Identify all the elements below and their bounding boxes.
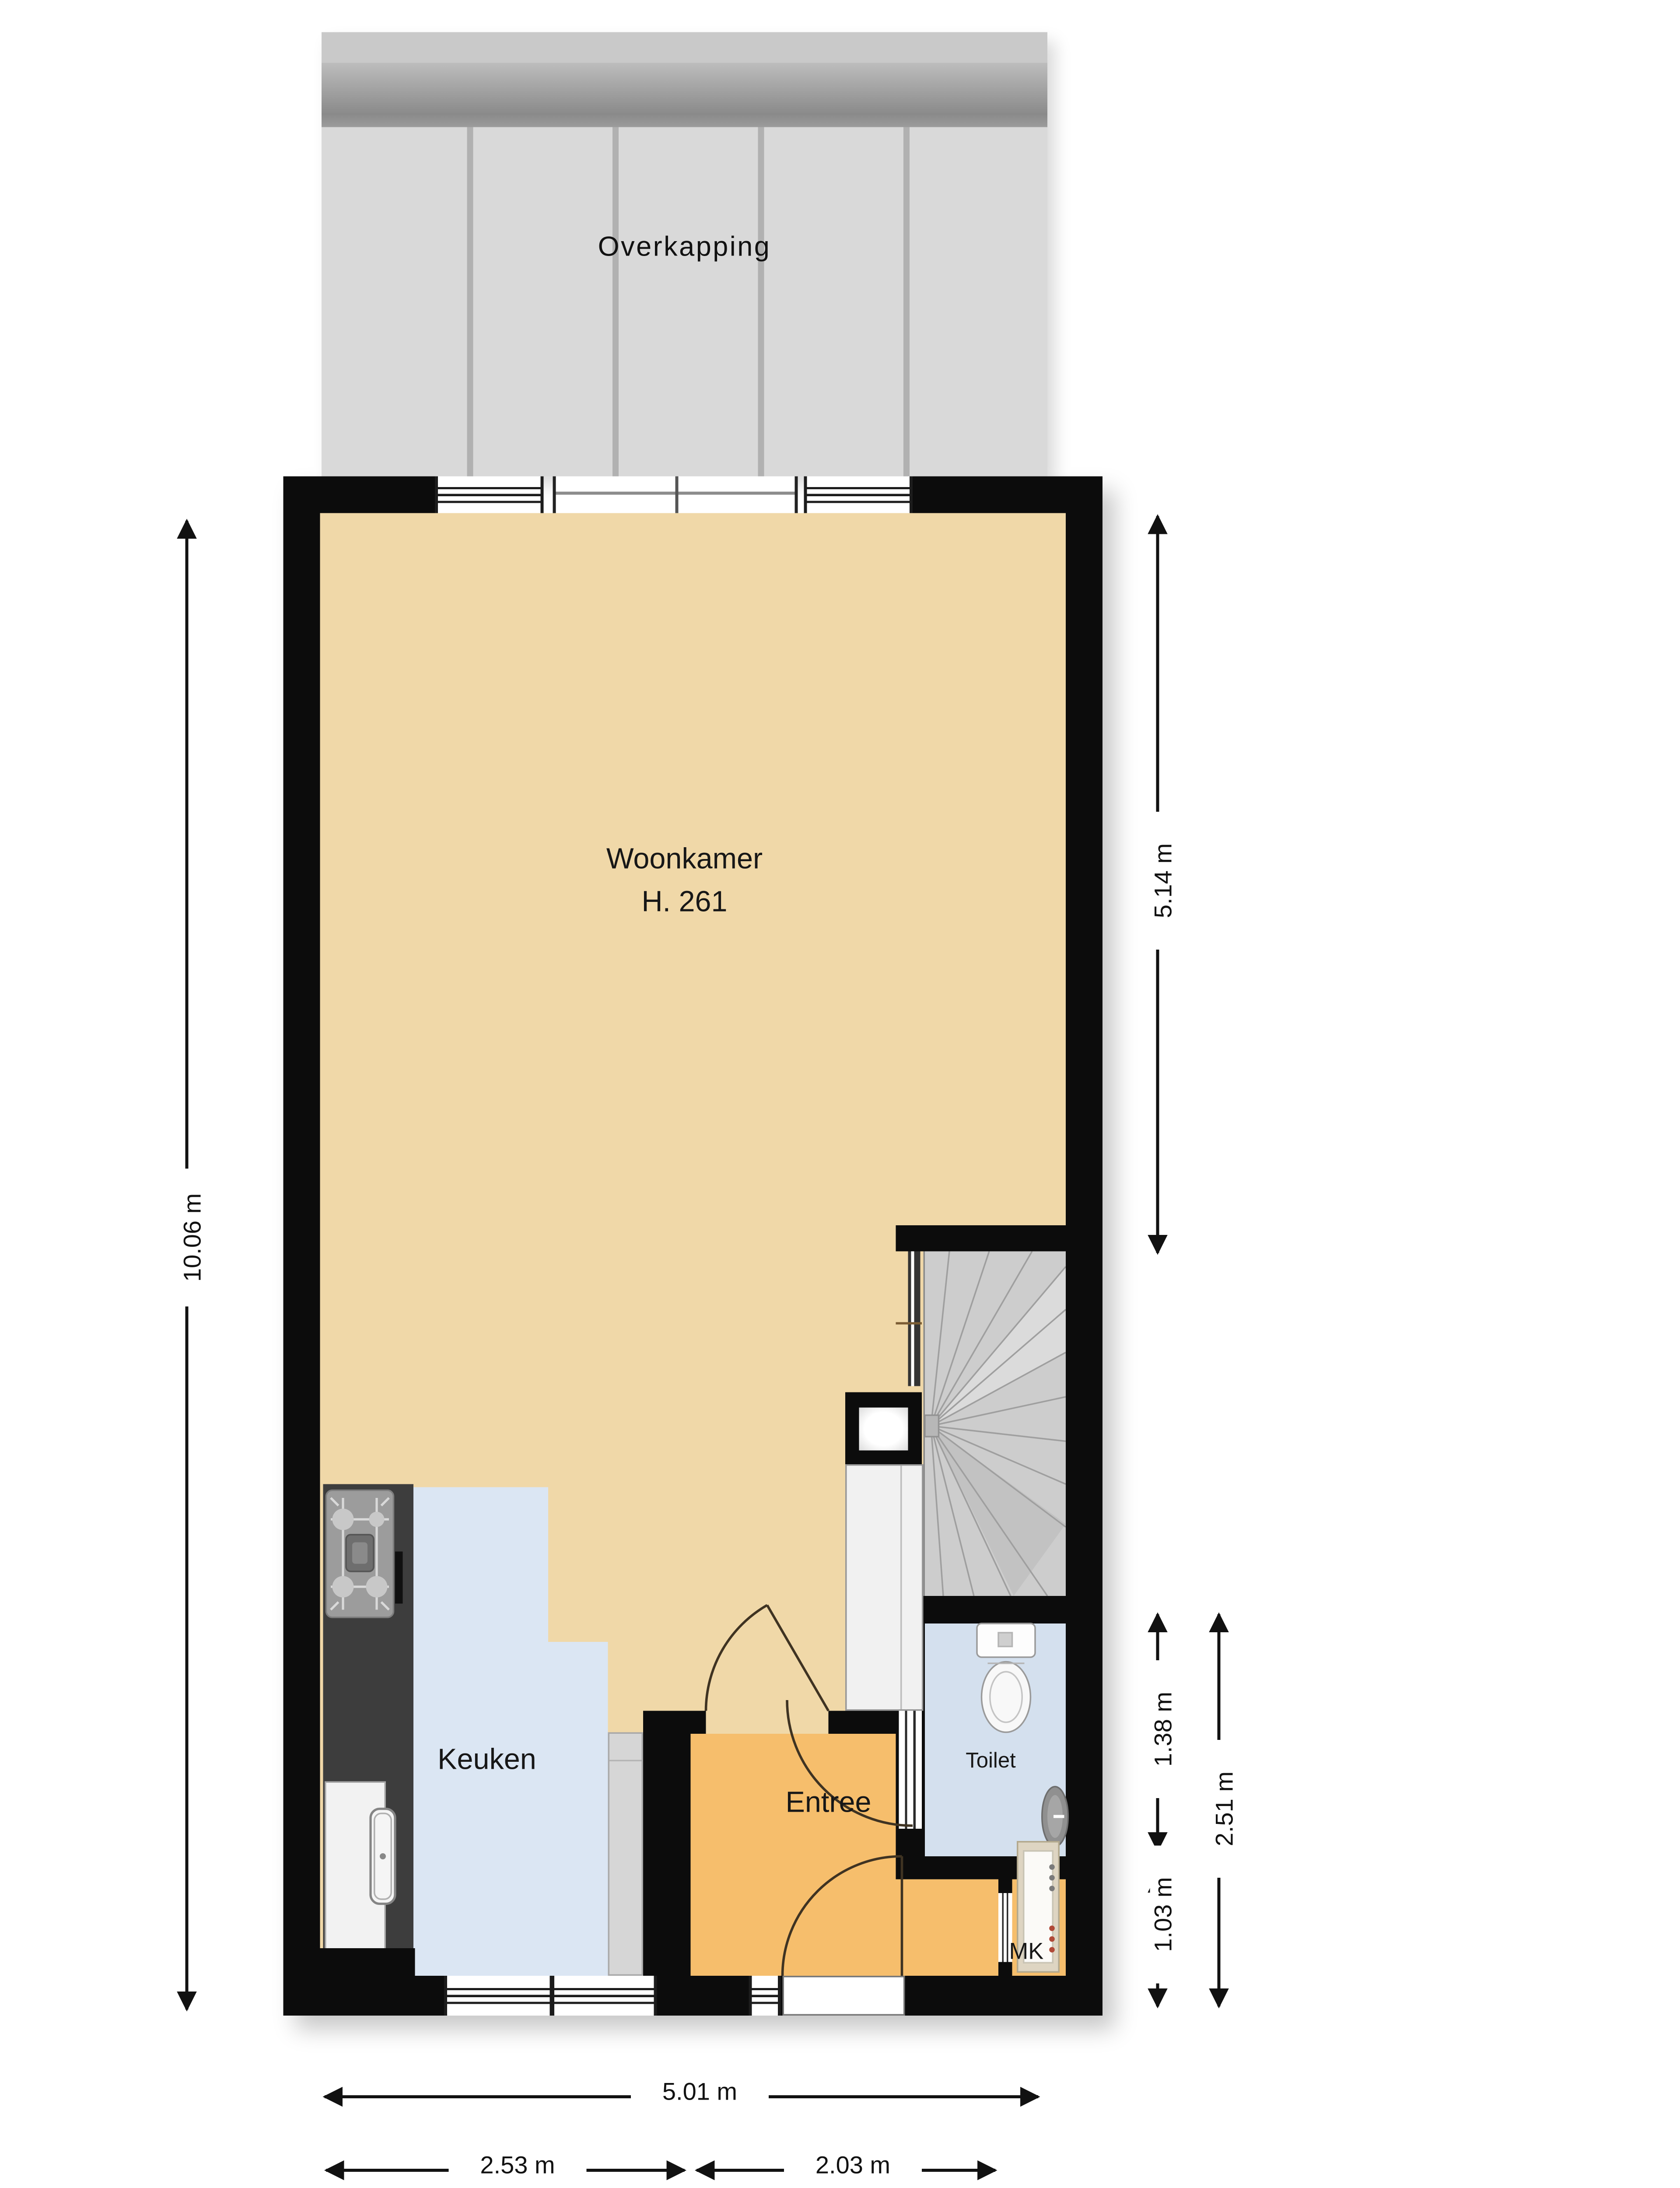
- keuken-label: Keuken: [410, 1745, 563, 1778]
- door-swing-woonkamer: [706, 1605, 767, 1711]
- door-leaf-woonkamer: [767, 1605, 829, 1711]
- dim-label-right-upper: 5.14 m: [1150, 812, 1181, 950]
- dim-label-right-meterkast: 1.03 m: [1150, 1846, 1181, 1984]
- dim-label-left-total: 10.06 m: [179, 1169, 210, 1307]
- woonkamer-label: Woonkamer: [532, 844, 838, 878]
- dim-label-right-toilet: 1.38 m: [1150, 1660, 1181, 1798]
- door-swing-front: [783, 1856, 902, 1976]
- dim-label-right-lower-total: 2.51 m: [1211, 1740, 1242, 1878]
- dim-label-bottom-right: 2.03 m: [784, 2152, 922, 2183]
- floor-plan: Overkapping: [0, 0, 1680, 2188]
- woonkamer-ceiling-height: H. 261: [532, 887, 838, 921]
- dim-label-bottom-total: 5.01 m: [631, 2079, 769, 2109]
- dim-label-bottom-left: 2.53 m: [449, 2152, 587, 2183]
- toilet-label: Toilet: [952, 1748, 1029, 1772]
- annotation-overlay: [0, 0, 1680, 2188]
- entree-label: Entree: [752, 1788, 905, 1821]
- meterkast-label: MK: [1009, 1939, 1044, 1965]
